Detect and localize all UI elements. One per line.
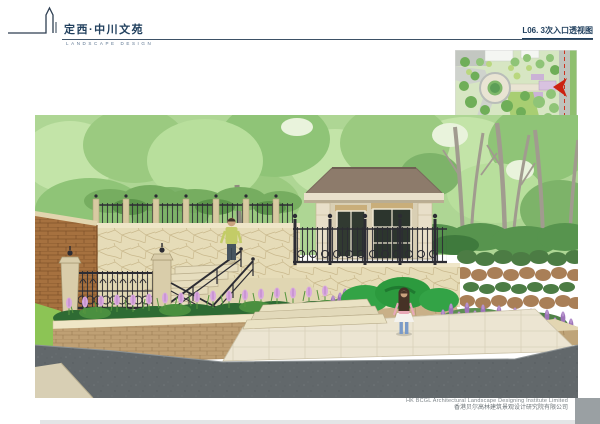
page-edge-shadow <box>40 420 575 424</box>
terraced-planting <box>455 250 578 309</box>
company-name-en: HK BCGL Architectural Landscape Designin… <box>406 398 568 405</box>
site-plan-inset <box>455 50 577 122</box>
project-subtitle: LANDSCAPE DESIGN <box>66 41 153 46</box>
company-name-cn: 香港贝尔高林建筑景观设计研究院有限公司 <box>406 405 568 413</box>
site-plan-roundabout <box>480 73 510 103</box>
header-rule <box>62 39 593 40</box>
sheet-title: L06. 3次入口透视图 <box>522 25 593 39</box>
pavilion-cornice <box>304 193 444 200</box>
perspective-rendering <box>35 115 578 398</box>
footer: HK BCGL Architectural Landscape Designin… <box>406 398 568 412</box>
presentation-board: 定西·中川文苑 LANDSCAPE DESIGN L06. 3次入口透视图 <box>0 0 600 424</box>
logo-mark <box>6 5 64 37</box>
gray-corner-block <box>575 398 600 424</box>
project-title: 定西·中川文苑 <box>64 21 144 37</box>
